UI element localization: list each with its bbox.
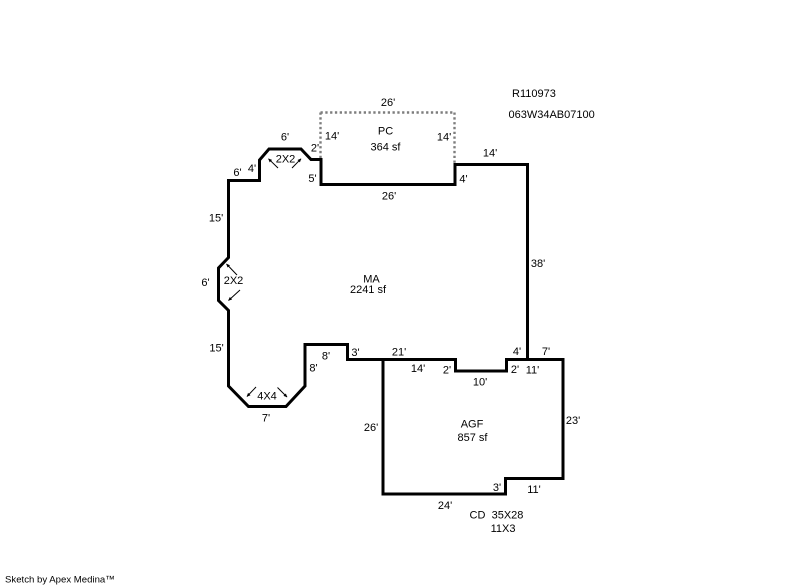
svg-text:14': 14' [437,132,451,144]
svg-text:PC: PC [378,126,393,138]
svg-text:14': 14' [325,131,339,143]
svg-text:23': 23' [566,415,580,427]
svg-text:11': 11' [526,365,540,377]
svg-text:26': 26' [364,422,378,434]
svg-text:8': 8' [309,363,317,375]
svg-text:14': 14' [483,148,497,160]
svg-text:26': 26' [382,191,396,203]
svg-text:CD: CD [470,510,486,522]
svg-text:6': 6' [281,132,289,144]
svg-text:11X3: 11X3 [491,523,516,535]
svg-text:2': 2' [443,365,451,377]
svg-text:21': 21' [392,347,406,359]
svg-text:364 sf: 364 sf [371,142,402,154]
svg-text:10': 10' [473,377,487,389]
svg-text:7': 7' [262,413,270,425]
svg-text:Sketch by Apex Medina™: Sketch by Apex Medina™ [5,575,115,586]
svg-text:063W34AB07100: 063W34AB07100 [509,109,595,121]
svg-text:4': 4' [248,163,256,175]
svg-text:14': 14' [411,363,425,375]
svg-text:AGF: AGF [461,419,484,431]
svg-text:6': 6' [233,167,241,179]
svg-text:2241 sf: 2241 sf [350,284,387,296]
svg-text:11': 11' [527,484,541,496]
svg-text:26': 26' [381,97,395,109]
svg-text:35X28: 35X28 [492,510,524,522]
svg-text:7': 7' [542,346,550,358]
svg-text:3': 3' [351,347,359,359]
svg-text:38': 38' [531,258,545,270]
svg-text:2X2: 2X2 [276,154,296,166]
svg-text:2X2: 2X2 [224,275,244,287]
svg-text:15': 15' [209,343,223,355]
svg-text:2': 2' [311,143,319,155]
svg-text:4': 4' [459,174,467,186]
svg-text:6': 6' [201,277,209,289]
svg-text:4X4: 4X4 [257,391,277,403]
svg-text:2': 2' [511,364,519,376]
svg-text:5': 5' [308,173,316,185]
svg-text:15': 15' [209,213,223,225]
svg-text:3': 3' [493,482,501,494]
svg-text:857 sf: 857 sf [458,432,489,444]
svg-text:4': 4' [513,346,521,358]
svg-text:8': 8' [322,351,330,363]
svg-text:24': 24' [438,500,452,512]
svg-text:R110973: R110973 [512,88,556,100]
